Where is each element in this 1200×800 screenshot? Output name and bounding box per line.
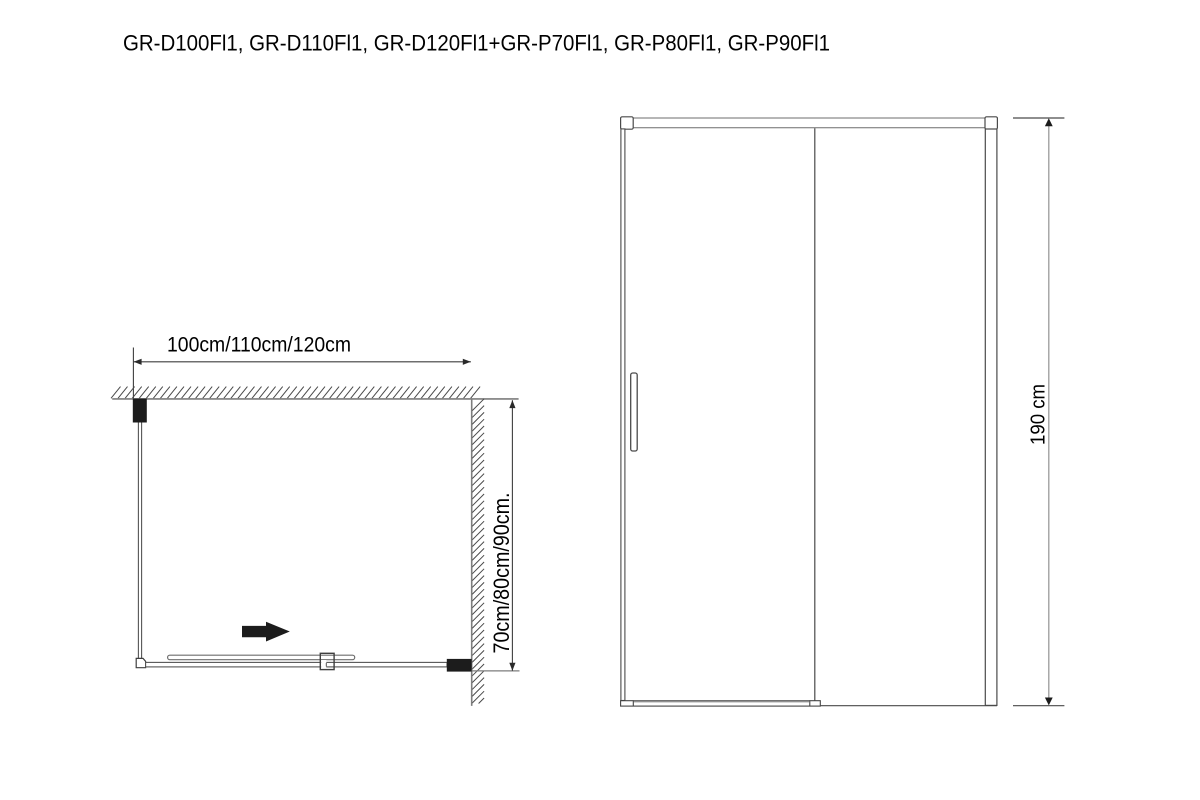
svg-text:190 cm: 190 cm: [1028, 384, 1050, 445]
svg-text:GR-D100Fl1, GR-D110Fl1, GR-D12: GR-D100Fl1, GR-D110Fl1, GR-D120Fl1+GR-P7…: [123, 30, 830, 55]
svg-text:100cm/110cm/120cm: 100cm/110cm/120cm: [167, 334, 351, 357]
svg-text:70cm/80cm/90cm.: 70cm/80cm/90cm.: [489, 493, 514, 654]
